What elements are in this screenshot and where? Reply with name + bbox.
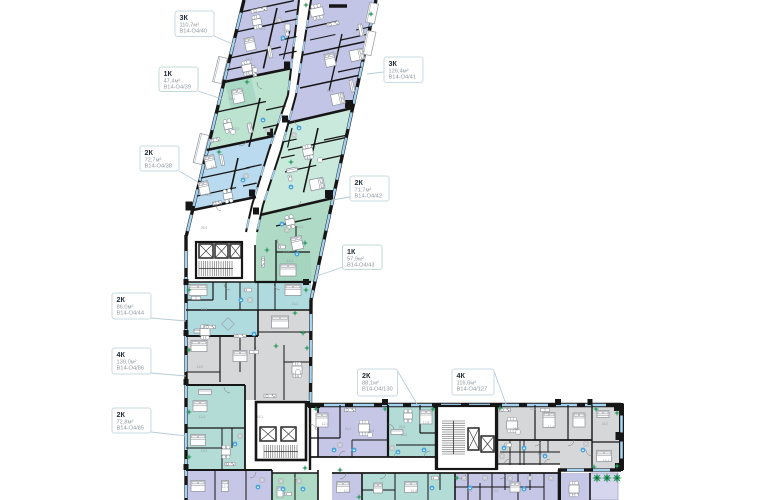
svg-text:2К: 2К <box>145 148 154 157</box>
svg-text:15,8: 15,8 <box>333 52 340 56</box>
svg-text:3К: 3К <box>389 59 398 68</box>
svg-text:16,1: 16,1 <box>229 97 236 101</box>
svg-text:В14-О4/38: В14-О4/38 <box>145 164 173 170</box>
svg-text:15,4: 15,4 <box>201 449 208 453</box>
svg-text:16,9: 16,9 <box>197 365 204 369</box>
svg-text:4,1: 4,1 <box>468 489 473 493</box>
svg-text:71,7м²: 71,7м² <box>355 187 372 193</box>
svg-text:2К: 2К <box>117 410 126 419</box>
svg-text:47,4м²: 47,4м² <box>164 78 181 84</box>
svg-text:В14-О4/44: В14-О4/44 <box>117 311 145 317</box>
svg-text:18,9: 18,9 <box>305 157 312 161</box>
svg-text:1К: 1К <box>347 247 356 256</box>
svg-text:В14-О4/85: В14-О4/85 <box>117 426 145 432</box>
svg-text:14,2: 14,2 <box>287 259 294 263</box>
svg-text:116,6м²: 116,6м² <box>457 380 477 386</box>
svg-text:В14-О4/41: В14-О4/41 <box>389 75 417 81</box>
svg-text:14,5: 14,5 <box>201 307 208 311</box>
svg-text:В14-О4/42: В14-О4/42 <box>355 194 383 200</box>
svg-text:11,8: 11,8 <box>411 489 417 493</box>
svg-text:15,4: 15,4 <box>603 459 610 463</box>
svg-text:86,0м²: 86,0м² <box>117 304 134 310</box>
svg-text:1К: 1К <box>164 69 173 78</box>
svg-text:12,1: 12,1 <box>222 485 229 489</box>
svg-text:72,7м²: 72,7м² <box>145 157 162 163</box>
svg-text:16,4: 16,4 <box>259 27 266 31</box>
svg-text:24,2: 24,2 <box>345 427 352 431</box>
svg-text:15,2: 15,2 <box>297 225 304 229</box>
svg-text:20,3: 20,3 <box>399 425 406 429</box>
svg-text:88,1м²: 88,1м² <box>362 380 379 386</box>
svg-text:20,9: 20,9 <box>243 71 250 75</box>
svg-text:В14-О4/130: В14-О4/130 <box>362 387 393 393</box>
svg-text:19,8: 19,8 <box>293 375 300 379</box>
svg-text:126,4м²: 126,4м² <box>389 68 409 74</box>
svg-text:14,2: 14,2 <box>246 57 253 61</box>
svg-text:В14-О4/40: В14-О4/40 <box>180 29 208 35</box>
svg-text:2К: 2К <box>117 295 126 304</box>
svg-text:3К: 3К <box>180 13 189 22</box>
svg-text:11,4: 11,4 <box>548 425 554 429</box>
svg-text:13,4: 13,4 <box>327 89 334 93</box>
svg-text:15,1: 15,1 <box>257 415 264 419</box>
svg-text:18,2: 18,2 <box>401 433 408 437</box>
svg-text:10,9: 10,9 <box>283 250 290 254</box>
svg-text:24,6: 24,6 <box>368 429 375 433</box>
svg-text:12,4: 12,4 <box>199 415 206 419</box>
svg-text:16,2: 16,2 <box>292 302 299 306</box>
svg-text:В14-О4/39: В14-О4/39 <box>164 85 192 91</box>
svg-text:12,4: 12,4 <box>322 422 329 426</box>
svg-text:57,9м²: 57,9м² <box>347 256 364 262</box>
svg-text:12,8: 12,8 <box>423 421 430 425</box>
svg-text:26,7: 26,7 <box>315 17 322 21</box>
svg-text:72,8м²: 72,8м² <box>117 419 134 425</box>
svg-text:139,0м²: 139,0м² <box>117 359 137 365</box>
svg-text:12,2: 12,2 <box>344 489 351 493</box>
svg-text:4К: 4К <box>457 371 466 380</box>
svg-text:26,2: 26,2 <box>513 427 520 431</box>
svg-text:12,2: 12,2 <box>233 127 240 131</box>
svg-text:В14-О4/86: В14-О4/86 <box>117 366 145 372</box>
svg-text:5,2: 5,2 <box>538 452 543 456</box>
svg-text:17,7: 17,7 <box>572 492 579 496</box>
svg-text:4К: 4К <box>117 350 126 359</box>
svg-text:3,8: 3,8 <box>494 489 499 493</box>
svg-text:11,2: 11,2 <box>530 407 536 411</box>
svg-text:В14-О4/127: В14-О4/127 <box>457 387 488 393</box>
svg-text:25,9: 25,9 <box>201 226 208 230</box>
svg-text:2К: 2К <box>362 371 371 380</box>
svg-text:110,7м²: 110,7м² <box>180 22 200 28</box>
svg-text:16,7: 16,7 <box>602 422 609 426</box>
svg-text:2К: 2К <box>355 178 364 187</box>
svg-text:В14-О4/43: В14-О4/43 <box>347 263 375 269</box>
svg-text:14,8: 14,8 <box>211 165 218 169</box>
svg-text:12,6: 12,6 <box>205 193 212 197</box>
